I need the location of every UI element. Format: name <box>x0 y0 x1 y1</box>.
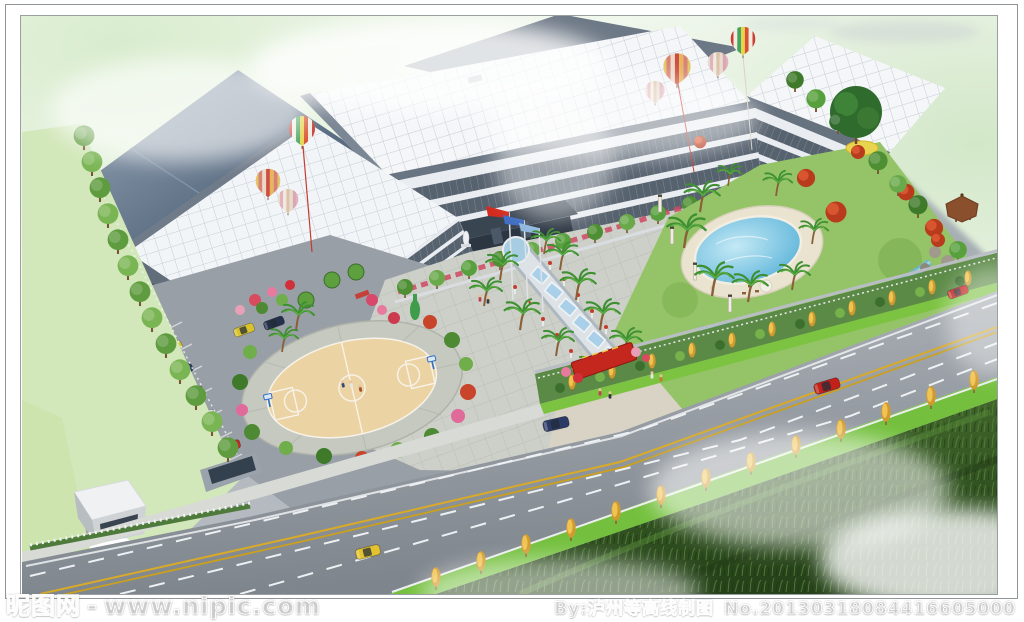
garden-lamp <box>658 195 662 213</box>
watermark-serial: No.20130318084416605000 <box>724 599 1016 619</box>
pedestrian <box>651 371 654 378</box>
cloud-wisp <box>830 21 980 43</box>
watermark-credit: By:泸州等高线制图 <box>554 599 714 619</box>
pedestrian <box>599 388 602 395</box>
garden-lamp <box>728 295 732 313</box>
pedestrian <box>479 294 482 301</box>
watermark-left: 昵图网-www.nipic.com <box>6 586 321 621</box>
flame-tree <box>826 202 847 223</box>
garden-lamp <box>693 263 697 281</box>
watermark-dash: - <box>87 592 98 620</box>
flame-tree <box>797 169 815 187</box>
watermarked-rendering: 昵图网-www.nipic.com By:泸州等高线制图No.201303180… <box>0 0 1024 622</box>
pedestrian <box>487 296 490 303</box>
pedestrian <box>660 374 663 381</box>
garden-lamp <box>670 227 674 245</box>
watermark-site-url: www.nipic.com <box>104 592 321 620</box>
pedestrian <box>609 391 612 398</box>
watermark-site-name: 昵图网 <box>6 592 81 620</box>
rendering-canvas <box>0 0 1024 622</box>
watermark-right: By:泸州等高线制图No.20130318084416605000 <box>554 594 1016 619</box>
